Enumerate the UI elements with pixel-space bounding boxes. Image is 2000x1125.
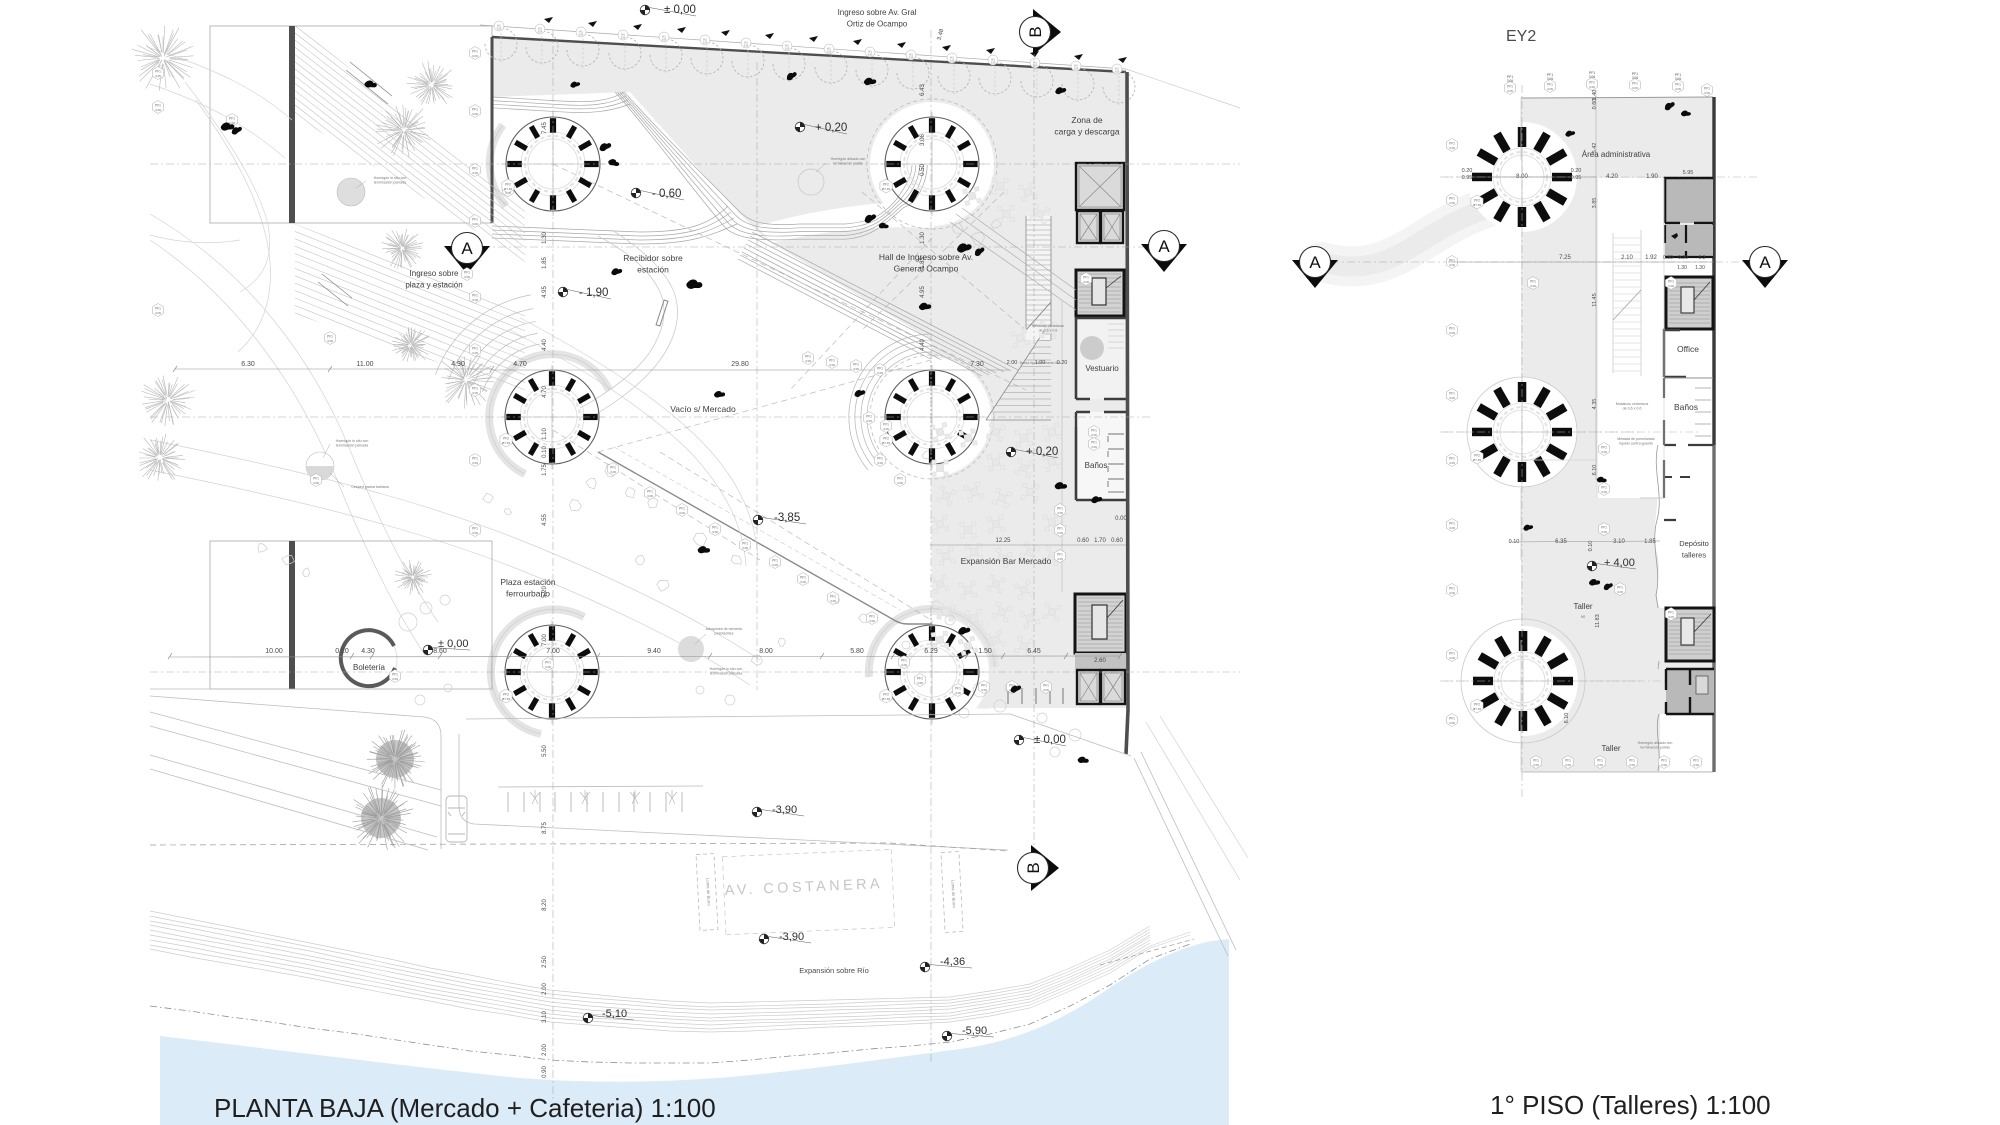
svg-text:± 0,00: ± 0,00 bbox=[664, 4, 696, 16]
svg-text:PF1: PF1 bbox=[869, 615, 875, 619]
svg-text:3.06: 3.06 bbox=[647, 494, 653, 498]
svg-text:1.85: 1.85 bbox=[542, 257, 548, 269]
svg-text:6.10: 6.10 bbox=[1592, 465, 1598, 476]
svg-text:3.06: 3.06 bbox=[472, 461, 478, 465]
svg-text:Vacío s/ Mercado: Vacío s/ Mercado bbox=[670, 404, 736, 414]
svg-text:1.85: 1.85 bbox=[1644, 539, 1656, 545]
svg-text:Césped grama bahiana: Césped grama bahiana bbox=[351, 485, 388, 489]
svg-text:3.06: 3.06 bbox=[883, 427, 889, 431]
svg-text:1.10: 1.10 bbox=[542, 428, 548, 440]
svg-text:7.30: 7.30 bbox=[970, 361, 984, 368]
svg-text:PF1: PF1 bbox=[472, 347, 478, 351]
svg-text:3.06: 3.06 bbox=[955, 691, 961, 695]
svg-text:3.06: 3.06 bbox=[1693, 763, 1699, 767]
svg-text:29.80: 29.80 bbox=[731, 361, 749, 368]
svg-text:12.25: 12.25 bbox=[995, 538, 1011, 544]
svg-text:PF1: PF1 bbox=[1661, 759, 1667, 763]
svg-text:2.00: 2.00 bbox=[1007, 360, 1018, 366]
svg-text:0.95: 0.95 bbox=[1571, 175, 1582, 181]
svg-text:Vestuario: Vestuario bbox=[1085, 364, 1119, 373]
svg-text:Baños: Baños bbox=[1085, 461, 1108, 470]
svg-text:3.06: 3.06 bbox=[1661, 763, 1667, 767]
svg-text:6.30: 6.30 bbox=[241, 361, 255, 368]
svg-text:Recibidor sobre: Recibidor sobre bbox=[623, 253, 683, 263]
svg-text:B: B bbox=[1026, 26, 1045, 37]
svg-text:PF1: PF1 bbox=[981, 684, 987, 688]
svg-text:3.06: 3.06 bbox=[662, 39, 667, 42]
svg-text:3.06: 3.06 bbox=[785, 48, 790, 51]
svg-text:3.06: 3.06 bbox=[155, 108, 161, 112]
svg-text:Ø7.45: Ø7.45 bbox=[1473, 203, 1482, 207]
svg-text:PF1: PF1 bbox=[1530, 280, 1536, 284]
svg-text:talleres: talleres bbox=[1682, 551, 1706, 560]
svg-text:3.85: 3.85 bbox=[1592, 198, 1598, 209]
svg-text:Expansión sobre Río: Expansión sobre Río bbox=[799, 966, 869, 975]
svg-text:+ 4,00: + 4,00 bbox=[1604, 557, 1635, 569]
svg-text:PF1: PF1 bbox=[712, 526, 718, 530]
svg-text:3.06: 3.06 bbox=[1589, 75, 1595, 79]
svg-text:3.06: 3.06 bbox=[1617, 590, 1623, 594]
svg-text:Zona de: Zona de bbox=[1071, 115, 1102, 125]
svg-text:3.06: 3.06 bbox=[472, 171, 478, 175]
svg-text:2.10: 2.10 bbox=[1621, 255, 1633, 261]
svg-text:3.06: 3.06 bbox=[1074, 68, 1079, 71]
svg-text:3.06: 3.06 bbox=[827, 51, 832, 54]
svg-text:terminación peinada: terminación peinada bbox=[710, 671, 742, 675]
svg-text:3.06: 3.06 bbox=[1668, 284, 1674, 288]
svg-text:PF1: PF1 bbox=[1597, 759, 1603, 763]
svg-text:A: A bbox=[1158, 237, 1170, 256]
svg-text:1.30: 1.30 bbox=[1677, 265, 1687, 271]
svg-text:-3,90: -3,90 bbox=[772, 804, 797, 816]
svg-text:PF1: PF1 bbox=[327, 335, 333, 339]
svg-text:3.06: 3.06 bbox=[472, 54, 478, 58]
svg-text:PF1: PF1 bbox=[877, 367, 883, 371]
svg-text:PF1: PF1 bbox=[464, 271, 470, 275]
svg-text:3.06: 3.06 bbox=[1043, 688, 1049, 692]
svg-text:PF1: PF1 bbox=[472, 527, 478, 531]
svg-text:A: A bbox=[1309, 253, 1321, 272]
svg-text:3.06: 3.06 bbox=[1449, 461, 1455, 465]
svg-text:Ø7.45: Ø7.45 bbox=[882, 441, 891, 445]
svg-text:Taller: Taller bbox=[1573, 602, 1592, 611]
svg-text:3.06: 3.06 bbox=[1449, 396, 1455, 400]
svg-text:3.06: 3.06 bbox=[1449, 331, 1455, 335]
svg-text:PF1: PF1 bbox=[1449, 522, 1455, 526]
svg-text:PF1: PF1 bbox=[610, 466, 616, 470]
svg-text:Office: Office bbox=[1677, 344, 1699, 354]
svg-text:0.20: 0.20 bbox=[1571, 168, 1582, 174]
svg-text:3.06: 3.06 bbox=[800, 580, 806, 584]
svg-text:PF2: PF2 bbox=[1474, 199, 1480, 203]
svg-text:3.06: 3.06 bbox=[579, 34, 584, 37]
svg-text:PF2: PF2 bbox=[883, 183, 889, 187]
svg-text:0.60: 0.60 bbox=[1111, 538, 1123, 544]
svg-text:± 0,00: ± 0,00 bbox=[1034, 734, 1066, 746]
svg-text:PF1: PF1 bbox=[1668, 611, 1674, 615]
svg-text:Ø7.45: Ø7.45 bbox=[1473, 707, 1482, 711]
svg-text:Ingreso sobre: Ingreso sobre bbox=[410, 269, 459, 278]
svg-text:6.45: 6.45 bbox=[1027, 648, 1041, 655]
svg-text:Ingreso sobre Av. Gral: Ingreso sobre Av. Gral bbox=[838, 8, 917, 17]
svg-text:11.00: 11.00 bbox=[357, 361, 374, 368]
svg-text:Hall de Ingreso sobre Av.: Hall de Ingreso sobre Av. bbox=[879, 252, 973, 262]
svg-text:4.30: 4.30 bbox=[361, 648, 375, 655]
svg-text:0.20: 0.20 bbox=[1462, 168, 1473, 174]
svg-text:2.60: 2.60 bbox=[1094, 658, 1106, 664]
svg-text:3.06: 3.06 bbox=[950, 60, 955, 63]
svg-text:7.00: 7.00 bbox=[546, 648, 560, 655]
svg-text:PF2: PF2 bbox=[883, 437, 889, 441]
svg-text:3.06: 3.06 bbox=[829, 363, 835, 367]
svg-text:Ortiz de Ocampo: Ortiz de Ocampo bbox=[847, 20, 908, 29]
svg-text:PF1: PF1 bbox=[1533, 759, 1539, 763]
svg-text:5.42: 5.42 bbox=[1592, 143, 1598, 154]
svg-text:PF1: PF1 bbox=[772, 559, 778, 563]
svg-text:6.10: 6.10 bbox=[1564, 713, 1570, 724]
svg-text:Baños: Baños bbox=[1674, 402, 1698, 412]
svg-text:3.06: 3.06 bbox=[1033, 65, 1038, 68]
svg-text:3.10: 3.10 bbox=[1613, 539, 1625, 545]
svg-text:3.06: 3.06 bbox=[1547, 87, 1553, 91]
svg-text:EY2: EY2 bbox=[1506, 28, 1536, 45]
svg-text:4.70: 4.70 bbox=[542, 386, 548, 398]
svg-text:0.3: 0.3 bbox=[1699, 255, 1706, 261]
svg-text:0.60: 0.60 bbox=[1592, 99, 1598, 110]
svg-text:PF2: PF2 bbox=[505, 183, 511, 187]
svg-text:0.20: 0.20 bbox=[335, 648, 349, 655]
svg-text:de 0.6 x 0.6: de 0.6 x 0.6 bbox=[1039, 328, 1058, 332]
svg-text:4.20: 4.20 bbox=[1606, 174, 1618, 180]
svg-text:3.06: 3.06 bbox=[1533, 763, 1539, 767]
svg-text:3.06: 3.06 bbox=[1057, 511, 1063, 515]
svg-text:8.60: 8.60 bbox=[433, 648, 447, 655]
svg-text:terminación peinada: terminación peinada bbox=[374, 180, 406, 184]
svg-text:3.06: 3.06 bbox=[1507, 89, 1513, 93]
svg-text:3.06: 3.06 bbox=[981, 688, 987, 692]
svg-text:terminación pulida: terminación pulida bbox=[1640, 745, 1669, 749]
svg-text:0.95: 0.95 bbox=[1462, 175, 1473, 181]
svg-text:3.06: 3.06 bbox=[869, 619, 875, 623]
svg-text:Hormigón in situ con: Hormigón in situ con bbox=[710, 667, 743, 671]
svg-text:+ 0,20: + 0,20 bbox=[815, 122, 847, 134]
svg-text:PF1: PF1 bbox=[472, 167, 478, 171]
svg-text:PF1: PF1 bbox=[679, 507, 685, 511]
svg-text:3.06: 3.06 bbox=[327, 339, 333, 343]
svg-text:terminación pulida: terminación pulida bbox=[833, 161, 862, 165]
svg-text:PF1: PF1 bbox=[1507, 85, 1513, 89]
svg-text:A: A bbox=[461, 239, 473, 258]
svg-text:3.06: 3.06 bbox=[1449, 526, 1455, 530]
svg-text:3.06: 3.06 bbox=[1589, 85, 1595, 89]
svg-text:4.70: 4.70 bbox=[513, 361, 527, 368]
svg-text:0.80: 0.80 bbox=[1663, 255, 1673, 261]
svg-text:PF1: PF1 bbox=[1565, 759, 1571, 763]
svg-text:PF1: PF1 bbox=[866, 415, 872, 419]
svg-text:PF1: PF1 bbox=[883, 423, 889, 427]
svg-text:4.40: 4.40 bbox=[542, 339, 548, 351]
svg-text:B: B bbox=[1024, 862, 1043, 873]
svg-text:PF1: PF1 bbox=[1449, 717, 1455, 721]
svg-text:Expansión Bar Mercado: Expansión Bar Mercado bbox=[961, 556, 1052, 566]
svg-text:PF1: PF1 bbox=[1449, 652, 1455, 656]
svg-text:3.06: 3.06 bbox=[621, 37, 626, 40]
svg-text:PF1: PF1 bbox=[1449, 392, 1455, 396]
svg-text:-4,36: -4,36 bbox=[940, 956, 965, 968]
svg-text:-3,90: -3,90 bbox=[779, 931, 804, 943]
svg-text:PF1: PF1 bbox=[742, 542, 748, 546]
svg-text:7.00: 7.00 bbox=[542, 634, 548, 646]
svg-text:Mesadas cerámicas: Mesadas cerámicas bbox=[1032, 324, 1064, 328]
svg-text:PF2: PF2 bbox=[503, 437, 509, 441]
svg-text:3.06: 3.06 bbox=[1629, 763, 1635, 767]
svg-text:3.06: 3.06 bbox=[1449, 656, 1455, 660]
svg-text:3.06: 3.06 bbox=[155, 74, 161, 78]
svg-text:PF1: PF1 bbox=[877, 457, 883, 461]
svg-text:PF1: PF1 bbox=[901, 659, 907, 663]
svg-text:PF1: PF1 bbox=[853, 363, 859, 367]
svg-text:- 1,90: - 1,90 bbox=[579, 287, 608, 299]
svg-text:8.00: 8.00 bbox=[759, 648, 773, 655]
svg-text:PF1: PF1 bbox=[1449, 142, 1455, 146]
svg-text:3.06: 3.06 bbox=[1597, 763, 1603, 767]
svg-text:7.25: 7.25 bbox=[1559, 255, 1571, 261]
svg-text:PF1: PF1 bbox=[1601, 526, 1607, 530]
svg-text:3.06: 3.06 bbox=[1449, 263, 1455, 267]
svg-text:3.06: 3.06 bbox=[1449, 146, 1455, 150]
svg-text:3.06: 3.06 bbox=[866, 419, 872, 423]
svg-text:2.00: 2.00 bbox=[542, 983, 548, 995]
svg-text:3.06: 3.06 bbox=[853, 367, 859, 371]
svg-text:3.06: 3.06 bbox=[1091, 433, 1097, 437]
svg-text:3.06: 3.06 bbox=[1449, 721, 1455, 725]
svg-text:3.06: 3.06 bbox=[897, 481, 903, 485]
svg-text:PF1: PF1 bbox=[229, 117, 235, 121]
svg-text:4.35: 4.35 bbox=[1592, 399, 1598, 410]
svg-text:PF1: PF1 bbox=[1057, 553, 1063, 557]
svg-text:PF1: PF1 bbox=[1449, 327, 1455, 331]
svg-text:PF1: PF1 bbox=[472, 294, 478, 298]
svg-text:3.06: 3.06 bbox=[155, 311, 161, 315]
svg-text:PF1: PF1 bbox=[1601, 486, 1607, 490]
svg-text:3.06: 3.06 bbox=[772, 563, 778, 567]
svg-text:PF1: PF1 bbox=[155, 70, 161, 74]
svg-text:3.10: 3.10 bbox=[542, 1011, 548, 1023]
svg-text:5.95: 5.95 bbox=[1683, 170, 1694, 176]
svg-text:3.06: 3.06 bbox=[497, 28, 502, 31]
svg-text:1.90: 1.90 bbox=[1646, 174, 1658, 180]
svg-text:3.06: 3.06 bbox=[1449, 591, 1455, 595]
svg-text:3.06: 3.06 bbox=[1565, 763, 1571, 767]
svg-text:PF1: PF1 bbox=[1632, 82, 1638, 86]
svg-text:3.06: 3.06 bbox=[742, 546, 748, 550]
svg-text:Ø7.45: Ø7.45 bbox=[504, 187, 513, 191]
svg-text:PF1: PF1 bbox=[472, 108, 478, 112]
svg-text:PF2: PF2 bbox=[1474, 454, 1480, 458]
svg-text:PF1: PF1 bbox=[155, 104, 161, 108]
svg-text:Ø7.45: Ø7.45 bbox=[502, 697, 511, 701]
svg-text:General Ocampo: General Ocampo bbox=[894, 264, 959, 274]
svg-text:3.06: 3.06 bbox=[744, 45, 749, 48]
svg-text:1.70: 1.70 bbox=[1094, 538, 1106, 544]
svg-text:5.50: 5.50 bbox=[542, 745, 548, 757]
svg-text:1.30: 1.30 bbox=[920, 232, 926, 244]
svg-text:0.50: 0.50 bbox=[920, 164, 926, 176]
svg-text:3.06: 3.06 bbox=[991, 62, 996, 65]
svg-text:4.95: 4.95 bbox=[920, 286, 926, 298]
svg-text:Banca tipo de cemento liso: Banca tipo de cemento liso bbox=[1020, 361, 1061, 365]
svg-text:2.50: 2.50 bbox=[542, 956, 548, 968]
svg-text:3.06: 3.06 bbox=[909, 57, 914, 60]
svg-text:3.06: 3.06 bbox=[1530, 284, 1536, 288]
svg-text:0.90: 0.90 bbox=[542, 1066, 548, 1078]
svg-text:PF1: PF1 bbox=[1704, 87, 1710, 91]
svg-text:3.06: 3.06 bbox=[1057, 531, 1063, 535]
svg-text:3.06: 3.06 bbox=[830, 599, 836, 603]
svg-text:3.06: 3.06 bbox=[1601, 530, 1607, 534]
svg-text:PF1: PF1 bbox=[1601, 446, 1607, 450]
svg-text:PF1: PF1 bbox=[1547, 83, 1553, 87]
svg-text:PF1: PF1 bbox=[545, 661, 551, 665]
svg-text:3.06: 3.06 bbox=[1547, 77, 1553, 81]
svg-text:Plaza estación: Plaza estación bbox=[500, 577, 556, 587]
svg-text:Hormigón alisado con: Hormigón alisado con bbox=[831, 157, 866, 161]
svg-text:3.06: 3.06 bbox=[1601, 490, 1607, 494]
svg-text:1.30: 1.30 bbox=[1695, 265, 1705, 271]
svg-text:+ 0,20: + 0,20 bbox=[1026, 446, 1058, 458]
svg-text:3.06: 3.06 bbox=[1449, 201, 1455, 205]
svg-text:PF2: PF2 bbox=[503, 693, 509, 697]
svg-text:1.75: 1.75 bbox=[542, 464, 548, 476]
svg-text:1.50: 1.50 bbox=[978, 648, 992, 655]
svg-text:PF1: PF1 bbox=[155, 307, 161, 311]
svg-text:3.06: 3.06 bbox=[679, 511, 685, 515]
svg-text:-3,85: -3,85 bbox=[774, 512, 800, 524]
svg-text:6.29: 6.29 bbox=[924, 648, 938, 655]
svg-text:PF1: PF1 bbox=[1693, 759, 1699, 763]
svg-text:PF1: PF1 bbox=[392, 673, 398, 677]
svg-text:PF1: PF1 bbox=[1449, 587, 1455, 591]
svg-text:5.80: 5.80 bbox=[850, 648, 864, 655]
svg-text:3.06: 3.06 bbox=[1091, 445, 1097, 449]
svg-text:PF1: PF1 bbox=[472, 218, 478, 222]
svg-text:PF1: PF1 bbox=[955, 687, 961, 691]
svg-text:3.06: 3.06 bbox=[901, 663, 907, 667]
svg-text:PF2: PF2 bbox=[1474, 703, 1480, 707]
svg-text:0.20: 0.20 bbox=[1678, 255, 1688, 261]
svg-text:3.06: 3.06 bbox=[703, 42, 708, 45]
svg-text:Ø7.45: Ø7.45 bbox=[882, 187, 891, 191]
svg-text:estación: estación bbox=[637, 265, 669, 275]
svg-text:PF1: PF1 bbox=[1057, 527, 1063, 531]
svg-text:PF1: PF1 bbox=[1617, 586, 1623, 590]
svg-text:11.83: 11.83 bbox=[1595, 614, 1601, 627]
svg-text:10.00: 10.00 bbox=[265, 648, 283, 655]
svg-text:3.06: 3.06 bbox=[313, 481, 319, 485]
svg-text:PF1: PF1 bbox=[1629, 759, 1635, 763]
svg-text:Hormigón in situ con: Hormigón in situ con bbox=[374, 176, 407, 180]
svg-text:3.06: 3.06 bbox=[1115, 71, 1120, 74]
svg-text:PF1: PF1 bbox=[647, 490, 653, 494]
svg-text:Hormigón alisado con: Hormigón alisado con bbox=[1638, 741, 1673, 745]
svg-text:4.90: 4.90 bbox=[451, 361, 465, 368]
svg-text:podotáctiles: podotáctiles bbox=[714, 631, 733, 635]
svg-text:Adoquines de cemento: Adoquines de cemento bbox=[706, 627, 743, 631]
svg-text:PLANTA BAJA (Mercado + Cafeter: PLANTA BAJA (Mercado + Cafeteria) 1:100 bbox=[214, 1093, 716, 1123]
svg-text:PF1: PF1 bbox=[1091, 441, 1097, 445]
svg-text:terminación peinada: terminación peinada bbox=[336, 443, 368, 447]
svg-text:Ø7.45: Ø7.45 bbox=[1473, 458, 1482, 462]
svg-text:3.06: 3.06 bbox=[472, 222, 478, 226]
svg-text:-5,10: -5,10 bbox=[602, 1008, 627, 1020]
svg-text:3.06: 3.06 bbox=[1632, 76, 1638, 80]
svg-text:carga y descarga: carga y descarga bbox=[1054, 127, 1119, 137]
svg-text:líquido contra-guardo: líquido contra-guardo bbox=[1619, 441, 1653, 445]
svg-text:PF1: PF1 bbox=[1083, 276, 1089, 280]
svg-text:PF1: PF1 bbox=[1449, 457, 1455, 461]
svg-text:0.60: 0.60 bbox=[1077, 538, 1089, 544]
svg-text:-5,90: -5,90 bbox=[962, 1025, 987, 1037]
svg-text:3.06: 3.06 bbox=[877, 461, 883, 465]
svg-text:0.10: 0.10 bbox=[1588, 541, 1594, 552]
svg-text:3.06: 3.06 bbox=[805, 359, 811, 363]
svg-text:3.06: 3.06 bbox=[877, 371, 883, 375]
svg-text:PF1: PF1 bbox=[472, 457, 478, 461]
svg-text:1.92: 1.92 bbox=[1645, 255, 1657, 261]
svg-text:PF2: PF2 bbox=[883, 693, 889, 697]
svg-text:3.06: 3.06 bbox=[610, 470, 616, 474]
svg-text:3.06: 3.06 bbox=[1057, 557, 1063, 561]
svg-text:3.06: 3.06 bbox=[1083, 280, 1089, 284]
svg-text:A: A bbox=[1759, 253, 1771, 272]
svg-text:PF1: PF1 bbox=[1091, 429, 1097, 433]
svg-text:6.35: 6.35 bbox=[1555, 539, 1567, 545]
svg-text:PF1: PF1 bbox=[1057, 507, 1063, 511]
svg-text:3.06: 3.06 bbox=[920, 134, 926, 146]
svg-text:PF1: PF1 bbox=[897, 477, 903, 481]
svg-text:Boletería: Boletería bbox=[353, 663, 386, 672]
svg-text:3.06: 3.06 bbox=[1632, 86, 1638, 90]
svg-text:3.06: 3.06 bbox=[1507, 79, 1513, 83]
svg-text:2.00: 2.00 bbox=[542, 1044, 548, 1056]
svg-text:PF1: PF1 bbox=[1449, 197, 1455, 201]
svg-text:de 0.6 x 0.6: de 0.6 x 0.6 bbox=[1623, 406, 1642, 410]
svg-text:3.06: 3.06 bbox=[712, 530, 718, 534]
svg-text:PF1: PF1 bbox=[800, 576, 806, 580]
svg-text:1.30: 1.30 bbox=[542, 232, 548, 244]
svg-text:PF1: PF1 bbox=[472, 50, 478, 54]
svg-text:3.06: 3.06 bbox=[472, 112, 478, 116]
svg-text:Taller: Taller bbox=[1601, 744, 1620, 753]
svg-text:8.20: 8.20 bbox=[542, 899, 548, 911]
svg-text:PF1: PF1 bbox=[917, 677, 923, 681]
svg-text:3.06: 3.06 bbox=[1675, 77, 1681, 81]
svg-text:Ø7.45: Ø7.45 bbox=[882, 697, 891, 701]
svg-text:Hormigón in situ con: Hormigón in situ con bbox=[336, 439, 369, 443]
svg-text:3.06: 3.06 bbox=[1704, 91, 1710, 95]
svg-text:90: 90 bbox=[1581, 614, 1586, 619]
svg-text:0.00: 0.00 bbox=[1115, 516, 1127, 522]
svg-text:PF1: PF1 bbox=[1668, 280, 1674, 284]
svg-text:3.06: 3.06 bbox=[392, 677, 398, 681]
svg-text:Ø7.45: Ø7.45 bbox=[502, 441, 511, 445]
svg-text:Depósito: Depósito bbox=[1679, 539, 1709, 548]
svg-text:PF1: PF1 bbox=[805, 355, 811, 359]
svg-text:6.43: 6.43 bbox=[920, 84, 926, 96]
svg-text:PF1: PF1 bbox=[313, 477, 319, 481]
svg-text:0.10: 0.10 bbox=[542, 446, 548, 458]
svg-text:3.06: 3.06 bbox=[472, 351, 478, 355]
